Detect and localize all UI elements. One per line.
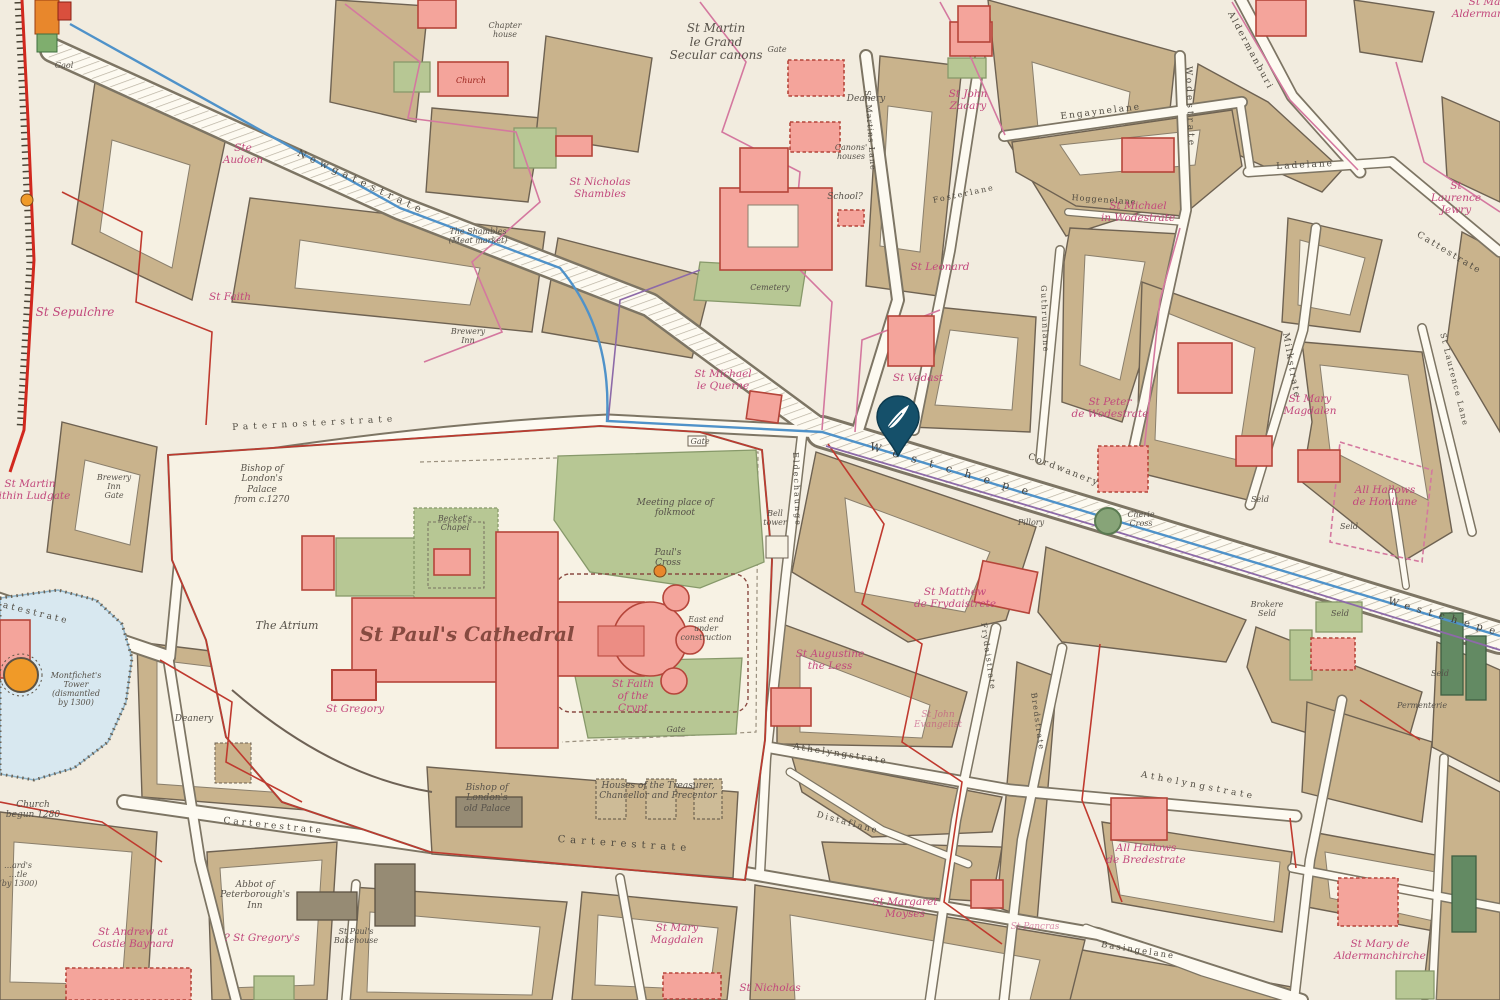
base-map	[0, 0, 1500, 1000]
st-michael-le-querne-building	[746, 391, 782, 423]
pauls-cross-icon	[654, 565, 666, 577]
location-pin-icon[interactable]	[874, 394, 922, 460]
montfichet-tower-icon	[4, 658, 38, 692]
map-viewport[interactable]: GaolChapter houseChurchSte AudoenSt Sepu…	[0, 0, 1500, 1000]
st-peter-building	[1098, 446, 1148, 492]
st-augustine-building	[771, 688, 811, 726]
newgate-gate-icon	[35, 0, 59, 34]
bell-tower-building	[766, 536, 788, 558]
st-leonard-building	[888, 316, 934, 366]
cheap-cross-icon	[1095, 508, 1121, 534]
st-gregory-building	[332, 670, 376, 700]
greyfriars-church-building	[438, 62, 508, 96]
city-wall	[10, 0, 71, 472]
